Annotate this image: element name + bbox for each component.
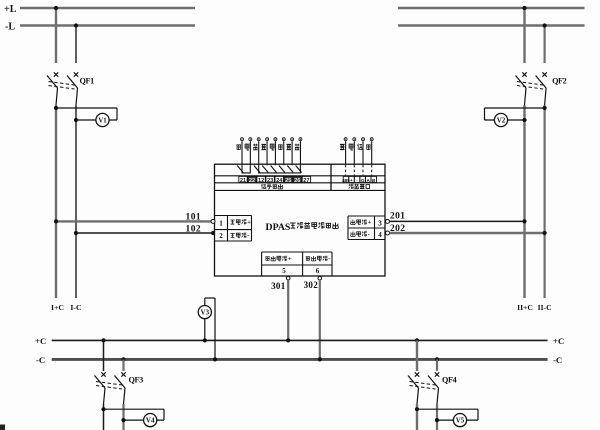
svg-text:1: 1 [219, 219, 223, 227]
svg-text:V3: V3 [201, 309, 210, 317]
svg-text:I-C: I-C [70, 303, 82, 312]
svg-text:+L: +L [4, 4, 17, 15]
svg-text:-: - [368, 231, 370, 238]
svg-text:2: 2 [219, 232, 223, 240]
svg-text:+: + [247, 219, 251, 226]
svg-text:I+C: I+C [51, 303, 64, 312]
svg-text:3: 3 [378, 219, 382, 227]
svg-text:101: 101 [186, 212, 201, 222]
svg-text:5: 5 [282, 267, 286, 275]
svg-text:102: 102 [186, 225, 201, 235]
svg-text:4: 4 [378, 231, 382, 239]
svg-text:QF3: QF3 [129, 376, 144, 385]
svg-text:21: 21 [240, 178, 246, 184]
svg-text:24: 24 [276, 178, 283, 184]
svg-text:+: + [350, 178, 353, 183]
svg-text:-C: -C [36, 355, 45, 365]
svg-text:+C: +C [35, 336, 46, 346]
svg-text:V2: V2 [497, 116, 506, 124]
svg-text:+: + [368, 219, 372, 226]
svg-text:G: G [361, 178, 365, 183]
svg-text:DPAS: DPAS [266, 222, 291, 233]
svg-text:V4: V4 [146, 417, 155, 425]
svg-text:-: - [328, 255, 330, 262]
svg-text:25: 25 [285, 178, 291, 184]
svg-text:201: 201 [390, 211, 405, 221]
svg-text:-C: -C [553, 355, 562, 365]
svg-text:302: 302 [304, 280, 319, 290]
svg-text:12: 12 [258, 178, 264, 184]
svg-text:27: 27 [303, 178, 309, 184]
svg-text:V5: V5 [456, 417, 465, 425]
svg-text:II-C: II-C [538, 303, 552, 312]
svg-text:23: 23 [267, 178, 273, 184]
svg-text:QF4: QF4 [442, 376, 457, 385]
svg-text:-: - [247, 232, 249, 239]
svg-text:6: 6 [316, 267, 320, 275]
svg-text:QF1: QF1 [80, 77, 95, 86]
svg-text:V1: V1 [98, 116, 107, 124]
svg-text:301: 301 [271, 281, 286, 291]
svg-text:26: 26 [294, 178, 300, 184]
svg-text:22: 22 [249, 178, 255, 184]
svg-text:QF2: QF2 [552, 77, 567, 86]
svg-text:+: + [288, 255, 292, 262]
svg-text:II+C: II+C [517, 303, 533, 312]
svg-text:-L: -L [5, 22, 15, 33]
svg-text:202: 202 [390, 224, 405, 234]
svg-text:+C: +C [553, 336, 564, 346]
